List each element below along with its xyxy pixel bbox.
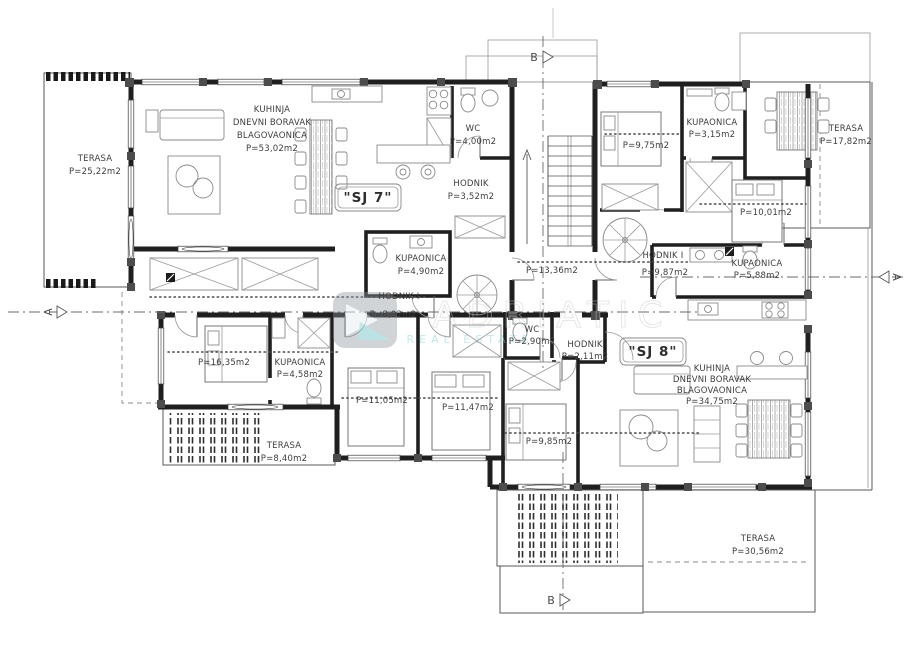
- label-sj8-bathroom1-area: P=3,15m2: [689, 130, 735, 140]
- label-sj7-bathroom-area: P=4,90m2: [398, 267, 444, 277]
- unit-tag-sj7-label: "SJ 7": [344, 190, 393, 206]
- window: [128, 100, 134, 148]
- label-sj8-hallway-i-name: HODNIK I: [643, 251, 684, 261]
- section-arrow-icon: [57, 306, 67, 318]
- window: [218, 79, 264, 85]
- label-terrace-s-area: P=30,56m2: [732, 547, 784, 557]
- window: [158, 328, 164, 384]
- label-stairwell-area: P=13,36m2: [526, 266, 578, 276]
- label-sj7-bedroom3-area: P=11,47m2: [442, 403, 494, 413]
- kitchen-island: [377, 145, 450, 163]
- label-sj7-wc-area: P=4,00m2: [450, 137, 496, 147]
- dining-table-sj8: [736, 400, 802, 458]
- label-sj7-bedroom1-area: P=16,35m2: [198, 358, 250, 368]
- wardrobe: [242, 258, 318, 290]
- label-sj8-living-1: KUHINJA: [694, 364, 730, 374]
- kitchen-sj7: [312, 86, 451, 179]
- window: [607, 81, 651, 87]
- label-sj8-hallway-area: P=2,11m2: [562, 352, 608, 362]
- pergola-hatch: [518, 494, 618, 563]
- terrace-northwest: [44, 72, 131, 288]
- bed: [205, 326, 267, 382]
- bathroom-fixtures-1-sj8: [687, 88, 746, 111]
- construction-outlines: [466, 8, 870, 82]
- terrace-southwest: [163, 409, 335, 465]
- label-sj7-hallway-i-area: P=8,02m2: [370, 310, 416, 320]
- section-marker-b-top: B: [530, 51, 553, 64]
- watermark-brand: ADRIATIC: [432, 295, 672, 336]
- sliding-door: [178, 246, 228, 252]
- label-sj8-wc-area: P=2,90m2: [509, 337, 555, 347]
- bed: [601, 112, 661, 166]
- label-sj8-wc-name: WC: [525, 325, 540, 335]
- section-marker-b-bottom: B: [547, 594, 570, 607]
- label-sj8-hallway-i-area: P=9,87m2: [642, 268, 688, 278]
- floor-plan-drawing: ADRIATIC REAL ESTATE "SJ 7" "SJ 8" TERAS…: [0, 0, 920, 648]
- window: [348, 455, 400, 461]
- label-sj7-bathroom-name: KUPAONICA: [396, 254, 447, 264]
- stool: [396, 165, 410, 179]
- label-sj7-hallway-i-name: HODNIK I: [379, 292, 420, 302]
- label-sj8-bathroom1-name: KUPAONICA: [687, 118, 738, 128]
- label-sj7-bathroom2-name: KUPAONICA: [275, 358, 326, 368]
- window: [128, 166, 134, 208]
- section-arrow-icon: [560, 594, 570, 606]
- wardrobe: [150, 258, 238, 290]
- section-arrow-icon: [543, 51, 553, 63]
- window: [805, 412, 811, 476]
- lower-floor-dashed-outline: [122, 292, 158, 403]
- window: [282, 79, 360, 85]
- window: [688, 484, 756, 490]
- drain-hatch: [168, 413, 260, 463]
- sliding-door: [228, 404, 283, 410]
- label-sj8-living-area: P=34,75m2: [686, 397, 738, 407]
- label-terrace-sw-area: P=8,40m2: [261, 454, 307, 464]
- unit-tag-sj8-label: "SJ 8": [629, 344, 678, 360]
- label-sj8-bedroom2-area: P=10,01m2: [740, 208, 792, 218]
- label-sj7-bedroom2-area: P=11,05m2: [356, 396, 408, 406]
- svg-text:A: A: [42, 308, 55, 316]
- stool: [751, 352, 764, 365]
- label-sj8-hallway-name: HODNIK: [567, 340, 602, 350]
- section-marker-a-left: A: [42, 306, 67, 318]
- unit-tag-sj8: "SJ 8": [620, 338, 686, 365]
- wc-fixtures-sj7: [461, 88, 498, 112]
- bed: [506, 404, 566, 460]
- label-sj8-bathroom2-area: P=5,88m2: [734, 271, 780, 281]
- label-sj8-living-3: BLAGOVAONICA: [677, 386, 747, 396]
- label-sj7-wc-name: WC: [466, 124, 481, 134]
- svg-text:B: B: [547, 594, 555, 607]
- window: [805, 186, 811, 238]
- bed: [348, 368, 404, 446]
- wardrobe: [508, 362, 560, 390]
- label-sj7-living-3: BLAGOVAONICA: [237, 131, 307, 141]
- shelf-unit: [694, 406, 720, 462]
- label-sj7-bathroom2-area: P=4,58m2: [277, 370, 323, 380]
- stool: [421, 165, 435, 179]
- label-terrace-ne-name: TERASA: [828, 124, 864, 134]
- side-table: [146, 110, 158, 132]
- label-terrace-nw-area: P=25,22m2: [69, 167, 121, 177]
- spiral-stair-sj8: [603, 218, 647, 262]
- label-sj7-hallway-area: P=3,52m2: [448, 192, 494, 202]
- svg-text:B: B: [530, 51, 538, 64]
- label-sj8-bathroom2-name: KUPAONICA: [732, 259, 783, 269]
- railing-hatch: [46, 72, 130, 81]
- window: [432, 455, 486, 461]
- window: [805, 248, 811, 290]
- sofa-sj7: [160, 110, 224, 140]
- wardrobe: [602, 184, 658, 210]
- label-sj7-living-1: KUHINJA: [254, 105, 290, 115]
- coffee-table: [629, 415, 653, 439]
- coffee-table: [193, 178, 213, 198]
- label-terrace-ne-area: P=17,82m2: [820, 137, 872, 147]
- window: [805, 98, 811, 158]
- railing-hatch: [46, 279, 96, 288]
- label-terrace-nw-name: TERASA: [77, 154, 113, 164]
- floor-plan-page: { "document": { "type": "apartment-floor…: [0, 0, 920, 648]
- wardrobe: [455, 216, 505, 238]
- sliding-door: [128, 216, 134, 262]
- label-sj8-bedroom3-area: P=9,85m2: [526, 437, 572, 447]
- window: [142, 79, 200, 85]
- section-arrow-icon: [879, 271, 889, 283]
- sliding-door: [518, 484, 570, 490]
- stool: [780, 352, 793, 365]
- label-sj7-hallway-name: HODNIK: [453, 179, 488, 189]
- main-staircase: [523, 136, 592, 246]
- label-terrace-s-name: TERASA: [740, 534, 776, 544]
- label-sj8-bedroom1-area: P=9,75m2: [623, 141, 669, 151]
- label-terrace-sw-name: TERASA: [266, 441, 302, 451]
- section-marker-a-right: A: [879, 271, 903, 283]
- label-sj8-living-2: DNEVNI BORAVAK: [673, 375, 752, 385]
- coffee-table: [176, 165, 198, 187]
- svg-text:A: A: [890, 273, 903, 281]
- label-sj7-living-area: P=53,02m2: [246, 144, 298, 154]
- label-sj7-living-2: DNEVNI BORAVAK: [233, 118, 312, 128]
- coffee-table: [647, 431, 667, 451]
